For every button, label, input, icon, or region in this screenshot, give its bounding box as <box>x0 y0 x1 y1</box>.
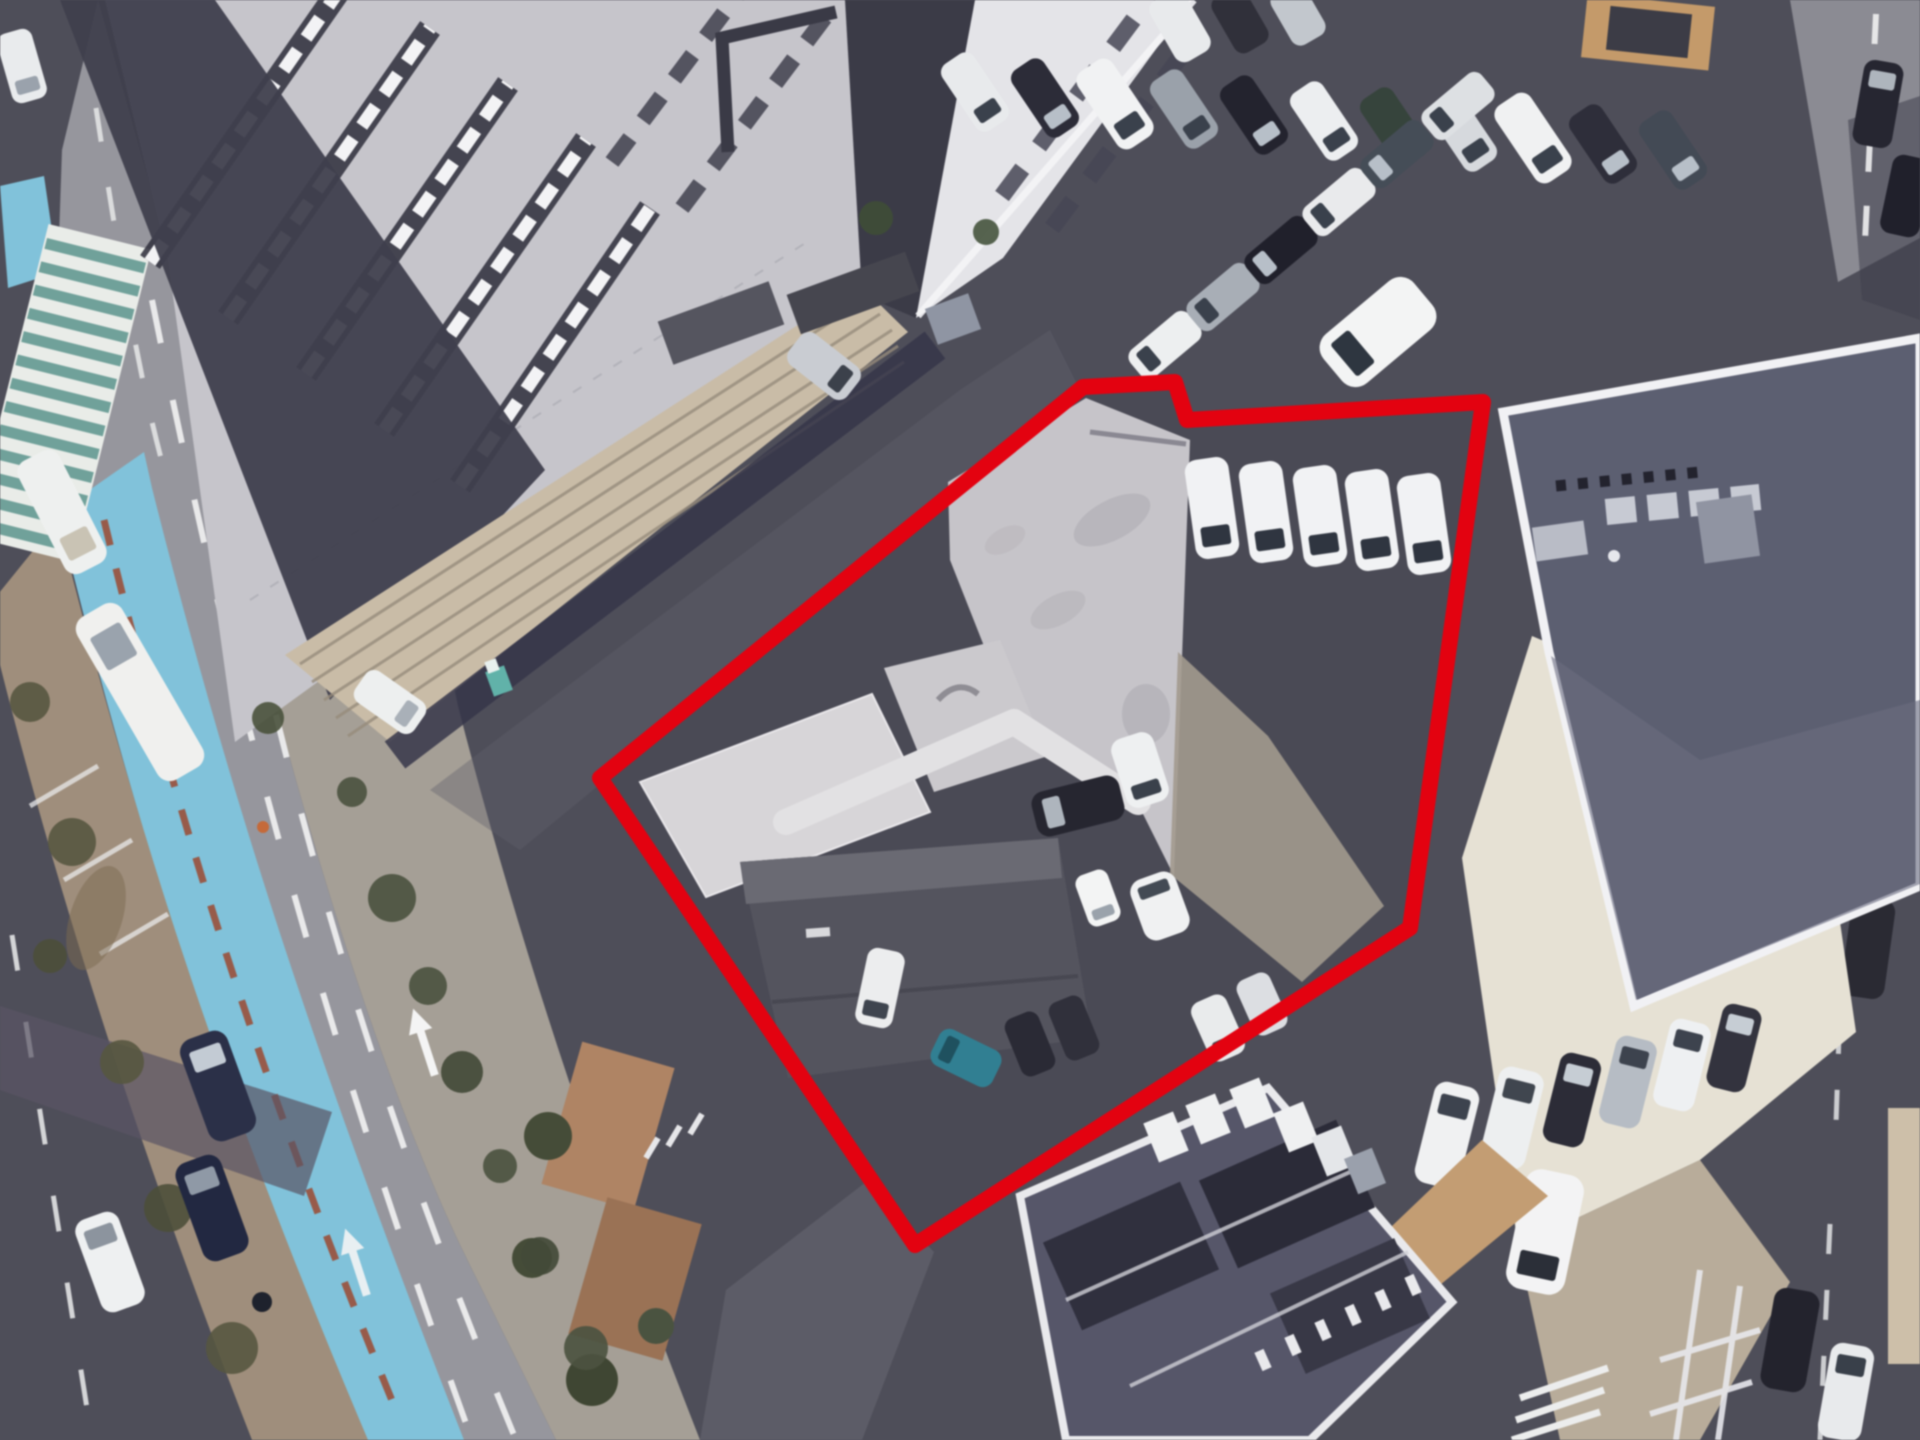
site-vent <box>806 927 831 938</box>
curb-tree <box>564 1326 608 1370</box>
curb-tree <box>441 1051 483 1093</box>
orange-dot <box>257 821 269 833</box>
median-tree-1 <box>10 682 50 722</box>
be-penthouse <box>1696 494 1760 563</box>
aerial-map <box>0 0 1920 1440</box>
curb-tuft <box>252 702 284 734</box>
be-dot-white <box>1608 550 1620 562</box>
bl-tree <box>638 1308 674 1344</box>
bl-tree <box>524 1112 572 1160</box>
curb-tree <box>409 967 447 1005</box>
curb-tree <box>521 1237 559 1275</box>
road-dot <box>252 1292 272 1312</box>
median-tree-6 <box>206 1322 258 1374</box>
curb-tree <box>483 1149 517 1183</box>
aerial-photo-stage <box>0 0 1920 1440</box>
wall-east <box>1888 1108 1920 1364</box>
median-tree-4 <box>100 1040 144 1084</box>
median-tree-2 <box>48 818 96 866</box>
tree-plaza-2 <box>973 219 999 245</box>
curb-tree <box>337 777 367 807</box>
be-box <box>1532 521 1588 562</box>
structure-tan-inner <box>1606 6 1692 58</box>
median-tree-3 <box>33 939 67 973</box>
tree-plaza-1 <box>859 201 893 235</box>
curb-tree <box>368 874 416 922</box>
